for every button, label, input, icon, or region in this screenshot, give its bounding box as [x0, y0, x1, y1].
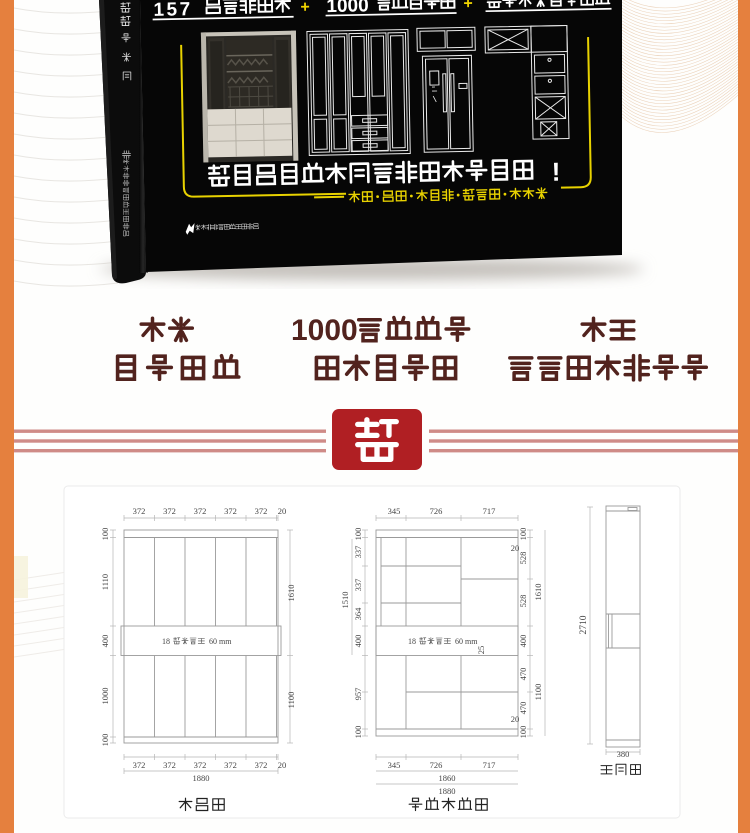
svg-text:18: 18	[162, 637, 170, 646]
svg-text:726: 726	[430, 506, 443, 516]
svg-text:372: 372	[194, 506, 207, 516]
svg-text:1880: 1880	[439, 786, 456, 796]
svg-text:157: 157	[153, 0, 193, 21]
svg-text:717: 717	[483, 760, 496, 770]
svg-text:470: 470	[518, 668, 528, 681]
svg-text:372: 372	[133, 506, 146, 516]
svg-text:1610: 1610	[286, 585, 296, 602]
svg-text:1510: 1510	[340, 592, 350, 609]
svg-text:726: 726	[430, 760, 443, 770]
svg-text:100: 100	[518, 726, 528, 739]
svg-text:372: 372	[255, 760, 268, 770]
svg-text:337: 337	[353, 579, 363, 592]
svg-text:345: 345	[388, 506, 401, 516]
svg-text:18: 18	[408, 637, 416, 646]
svg-text:400: 400	[518, 635, 528, 648]
svg-text:364: 364	[353, 607, 363, 621]
svg-text:1880: 1880	[193, 773, 210, 783]
svg-text:+: +	[300, 0, 310, 16]
svg-text:100: 100	[100, 734, 110, 747]
svg-text:372: 372	[194, 760, 207, 770]
svg-text:400: 400	[353, 635, 363, 648]
svg-text:20: 20	[278, 506, 287, 516]
svg-text:2710: 2710	[579, 615, 589, 634]
svg-text:372: 372	[133, 760, 146, 770]
svg-text:100: 100	[100, 528, 110, 541]
svg-text:372: 372	[163, 506, 176, 516]
svg-text:100: 100	[353, 528, 363, 541]
svg-text:20: 20	[511, 543, 520, 553]
svg-text:20: 20	[511, 714, 520, 724]
svg-text:1860: 1860	[439, 773, 456, 783]
svg-text:+: +	[463, 0, 473, 12]
svg-text:!: !	[551, 157, 560, 187]
svg-text:345: 345	[388, 760, 401, 770]
svg-text:717: 717	[483, 506, 496, 516]
svg-text:100: 100	[353, 726, 363, 739]
svg-text:60 mm: 60 mm	[209, 637, 232, 646]
svg-text:1610: 1610	[533, 584, 543, 601]
svg-text:470: 470	[518, 702, 528, 715]
svg-text:528: 528	[518, 595, 528, 608]
svg-text:372: 372	[255, 506, 268, 516]
svg-text:1100: 1100	[533, 684, 543, 701]
svg-text:60 mm: 60 mm	[455, 637, 478, 646]
svg-text:957: 957	[353, 688, 363, 701]
svg-text:1000: 1000	[291, 314, 358, 347]
svg-text:20: 20	[278, 760, 287, 770]
svg-text:1110: 1110	[100, 574, 110, 590]
svg-text:25: 25	[476, 646, 486, 655]
svg-text:400: 400	[100, 635, 110, 648]
svg-text:337: 337	[353, 546, 363, 559]
svg-text:372: 372	[163, 760, 176, 770]
svg-text:1000: 1000	[100, 688, 110, 705]
svg-text:528: 528	[518, 552, 528, 565]
svg-text:372: 372	[224, 760, 237, 770]
svg-text:380: 380	[617, 749, 630, 759]
svg-text:100: 100	[518, 528, 528, 541]
svg-text:1100: 1100	[286, 692, 296, 709]
svg-text:372: 372	[224, 506, 237, 516]
